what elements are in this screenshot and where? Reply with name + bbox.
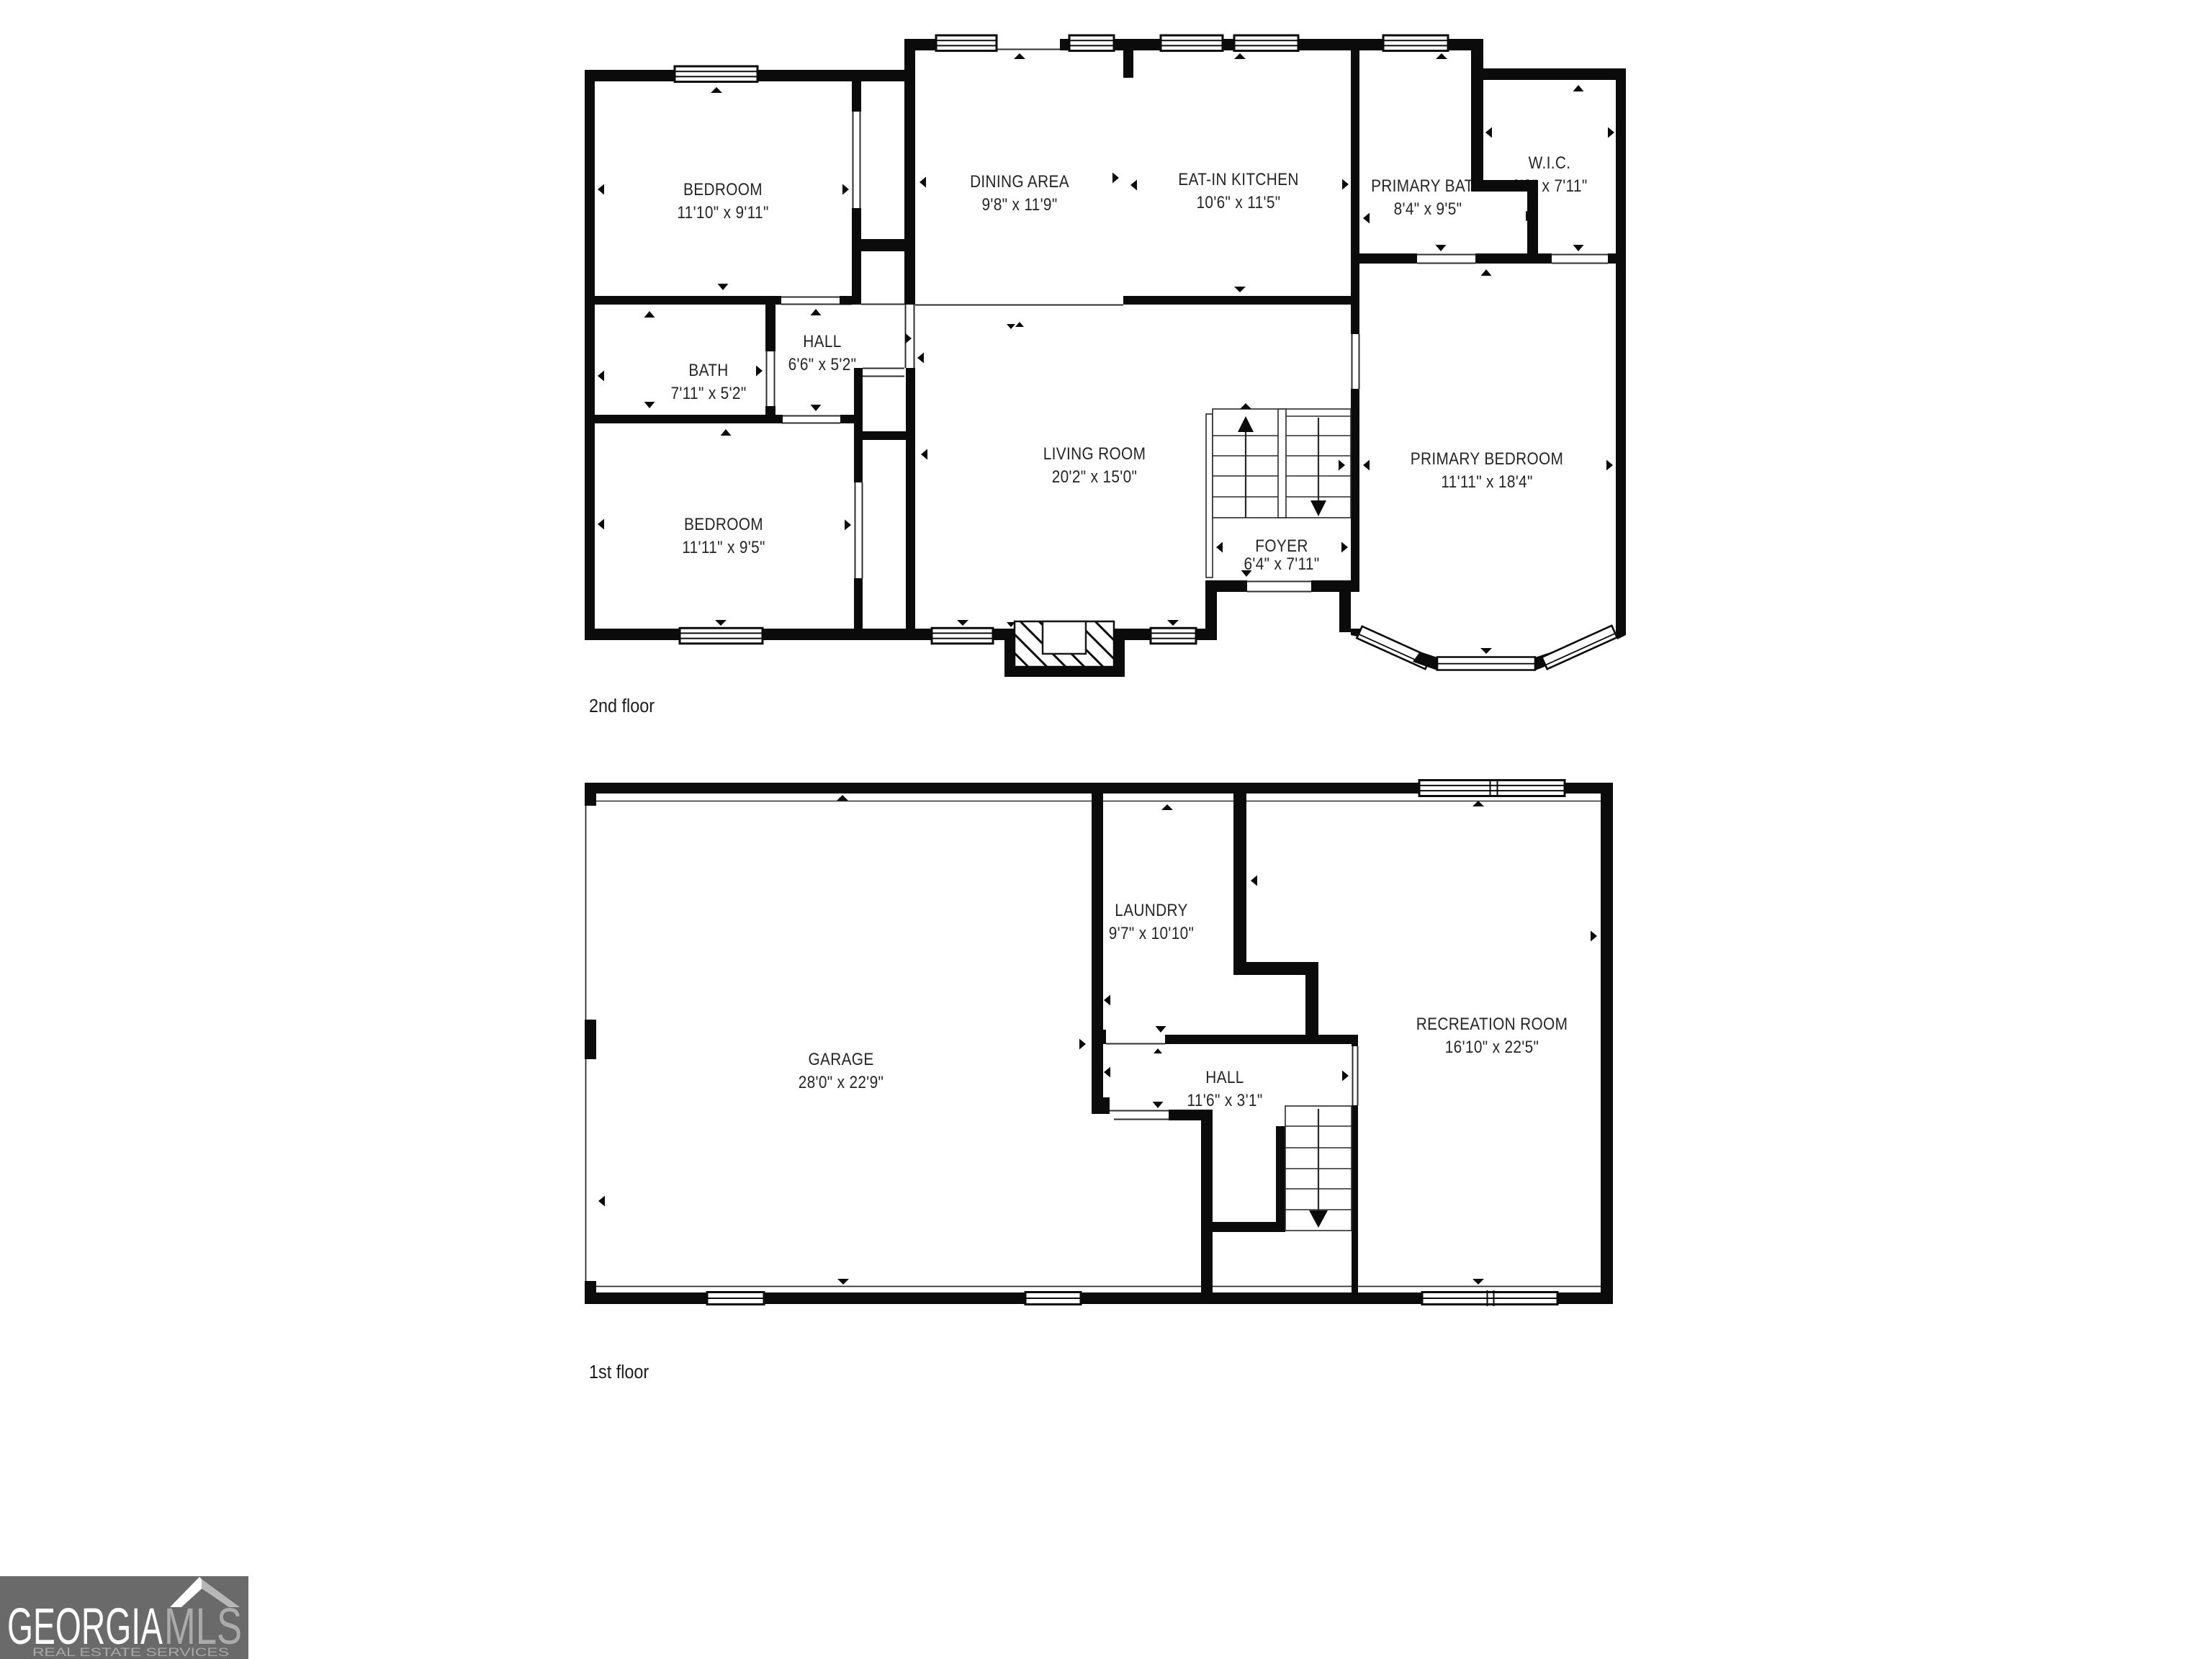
svg-text:LAUNDRY: LAUNDRY	[1115, 899, 1187, 920]
svg-text:11'11" x 9'5": 11'11" x 9'5"	[682, 536, 765, 557]
svg-text:9'8" x 11'9": 9'8" x 11'9"	[981, 194, 1057, 214]
svg-text:HALL: HALL	[1205, 1066, 1244, 1087]
svg-text:EAT-IN KITCHEN: EAT-IN KITCHEN	[1178, 168, 1298, 189]
svg-text:16'10" x 22'5": 16'10" x 22'5"	[1445, 1036, 1539, 1056]
svg-text:20'2" x 15'0": 20'2" x 15'0"	[1052, 466, 1138, 486]
svg-text:10'6" x 11'5": 10'6" x 11'5"	[1196, 192, 1280, 212]
svg-text:LIVING ROOM: LIVING ROOM	[1043, 443, 1146, 463]
svg-text:REAL ESTATE SERVICES: REAL ESTATE SERVICES	[32, 1645, 229, 1659]
svg-text:HALL: HALL	[803, 331, 841, 351]
svg-text:W.I.C.: W.I.C.	[1529, 152, 1571, 172]
svg-text:BEDROOM: BEDROOM	[684, 513, 763, 534]
svg-text:PRIMARY BATH: PRIMARY BATH	[1371, 175, 1485, 195]
svg-text:RECREATION ROOM: RECREATION ROOM	[1416, 1013, 1568, 1033]
svg-text:9'7" x 10'10": 9'7" x 10'10"	[1109, 922, 1195, 943]
svg-text:2nd floor: 2nd floor	[589, 696, 655, 716]
svg-text:FOYER: FOYER	[1255, 535, 1308, 555]
svg-text:GARAGE: GARAGE	[808, 1048, 873, 1069]
svg-text:DINING AREA: DINING AREA	[970, 171, 1069, 191]
svg-text:28'0" x 22'9": 28'0" x 22'9"	[799, 1071, 884, 1092]
svg-text:11'6" x 3'1": 11'6" x 3'1"	[1187, 1089, 1262, 1110]
svg-text:PRIMARY BEDROOM: PRIMARY BEDROOM	[1411, 448, 1563, 468]
svg-text:11'11" x 18'4": 11'11" x 18'4"	[1441, 471, 1532, 491]
svg-text:1st floor: 1st floor	[589, 1362, 649, 1382]
svg-text:BEDROOM: BEDROOM	[683, 179, 763, 199]
svg-text:8'4" x 9'5": 8'4" x 9'5"	[1394, 198, 1462, 218]
svg-text:BATH: BATH	[688, 359, 728, 379]
svg-text:6'4" x 7'11": 6'4" x 7'11"	[1244, 553, 1319, 573]
svg-text:6'6" x 5'2": 6'6" x 5'2"	[788, 354, 857, 374]
svg-text:7'11" x 5'2": 7'11" x 5'2"	[670, 382, 746, 403]
svg-text:11'10" x 9'11": 11'10" x 9'11"	[677, 202, 768, 222]
